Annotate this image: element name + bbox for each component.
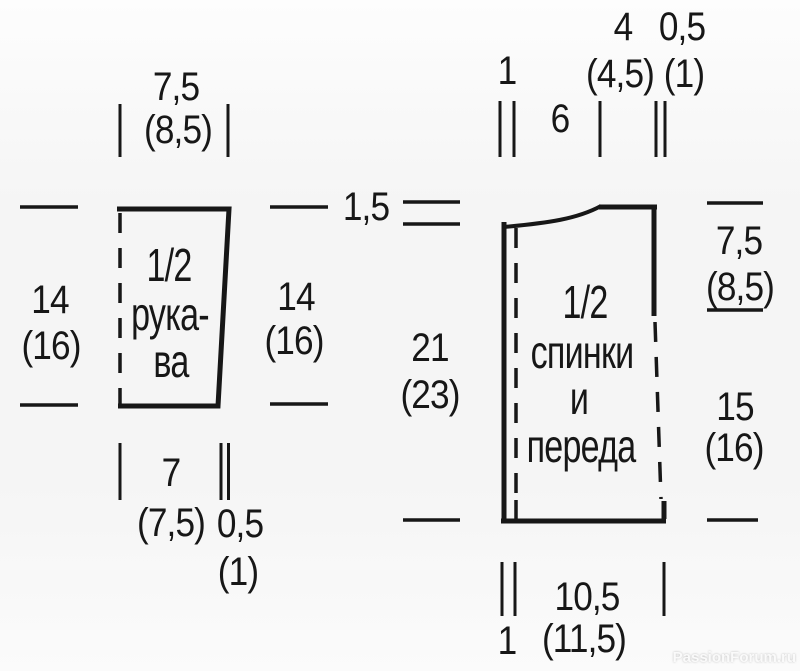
sleeve-bottom-width-label: 7 <box>162 453 181 493</box>
bodice-title-line-2: спинки <box>531 329 634 375</box>
bodice-bottom-width-alt-label: (11,5) <box>542 619 626 659</box>
knitting-pattern-diagram: 7,5 (8,5) 14 (16) 14 (16) 1/2 рука- ва 7… <box>0 0 800 671</box>
bodice-bottom-width-label: 10,5 <box>555 577 620 617</box>
shoulder-edge-label: 0,5 <box>659 7 705 47</box>
shoulder-width-alt-label: (4,5) <box>586 54 654 94</box>
sleeve-top-width-alt-label: (8,5) <box>144 110 212 150</box>
shoulder-drop-label: 1,5 <box>343 187 389 227</box>
shoulder-edge-alt-label: (1) <box>664 54 704 94</box>
sleeve-right-height-alt-label: (16) <box>264 321 323 361</box>
sleeve-title-line-1: 1/2 <box>146 242 191 288</box>
bodice-side-upper-alt-label: (23) <box>400 375 459 415</box>
armhole-depth-alt-label: (8,5) <box>706 267 774 307</box>
bodice-side-upper-label: 21 <box>411 328 448 368</box>
bodice-title-line-3: и <box>570 375 588 421</box>
bodice-top-band-label: 1 <box>498 51 517 91</box>
bodice-bottom-band-label: 1 <box>498 621 517 661</box>
armhole-depth-label: 7,5 <box>716 221 762 261</box>
bodice-title-line-4: переда <box>527 423 636 469</box>
sleeve-left-height-label: 14 <box>31 280 68 320</box>
bodice-side-lower-alt-label: (16) <box>704 428 763 468</box>
bodice-right-dashed-edge <box>655 322 661 499</box>
sleeve-bottom-width-alt-label: (7,5) <box>137 503 205 543</box>
bodice-side-lower-label: 15 <box>716 387 753 427</box>
sleeve-right-height-label: 14 <box>277 277 314 317</box>
neck-width-label: 6 <box>551 99 570 139</box>
watermark-text: PassionForum.ru <box>673 650 796 665</box>
bodice-title-line-1: 1/2 <box>562 279 607 325</box>
sleeve-title-line-2: рука- <box>131 291 209 337</box>
sleeve-title-line-3: ва <box>153 338 188 384</box>
sleeve-bottom-band-label: 0,5 <box>217 504 263 544</box>
bodice-shoulder-and-armhole-edge <box>599 205 657 316</box>
bodice-neckline-curve <box>504 206 601 227</box>
sleeve-bottom-band-alt-label: (1) <box>218 552 258 592</box>
sleeve-left-height-alt-label: (16) <box>21 326 80 366</box>
sleeve-top-width-label: 7,5 <box>153 67 199 107</box>
shoulder-width-label: 4 <box>614 7 633 47</box>
pattern-outlines <box>0 0 800 671</box>
